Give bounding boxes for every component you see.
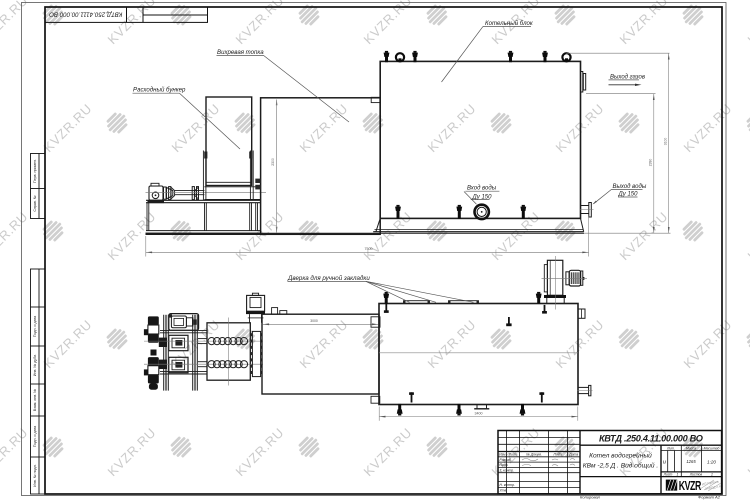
svg-text:3000: 3000 xyxy=(310,319,318,323)
svg-text:Перв. примен.: Перв. примен. xyxy=(33,159,37,183)
svg-text:1:20: 1:20 xyxy=(707,459,716,464)
svg-text:и: и xyxy=(663,460,666,466)
svg-text:Лист: Лист xyxy=(508,452,518,456)
svg-text:КВТД .250.4.11.00.000 ВО: КВТД .250.4.11.00.000 ВО xyxy=(599,433,703,443)
svg-text:Масштаб: Масштаб xyxy=(704,446,720,450)
svg-text:1: 1 xyxy=(711,473,713,477)
svg-text:Лит.: Лит. xyxy=(666,446,675,450)
svg-text:Т. контр.: Т. контр. xyxy=(500,469,515,473)
svg-text:Дата: Дата xyxy=(568,452,578,456)
svg-text:Утв.: Утв. xyxy=(500,489,508,493)
svg-text:1: 1 xyxy=(677,473,679,477)
svg-text:7500: 7500 xyxy=(365,247,373,251)
svg-text:Пров.: Пров. xyxy=(500,463,509,467)
svg-text:KVZR: KVZR xyxy=(679,480,702,494)
svg-text:Справ. №: Справ. № xyxy=(33,195,37,211)
svg-text:Инв. № дубл.: Инв. № дубл. xyxy=(33,354,37,376)
svg-text:3400: 3400 xyxy=(475,412,483,416)
svg-text:КВТД.250.4111.00.000 ВО: КВТД.250.4111.00.000 ВО xyxy=(49,10,122,17)
svg-text:Подп.: Подп. xyxy=(553,452,562,456)
svg-text:Котел водогрейный: Котел водогрейный xyxy=(589,452,652,460)
svg-text:Разраб.: Разраб. xyxy=(500,458,512,462)
svg-text:Взам. инв. №: Взам. инв. № xyxy=(33,389,37,411)
svg-text:Копировал: Копировал xyxy=(580,494,601,499)
svg-text:№ Докум.: № Докум. xyxy=(526,452,542,456)
svg-text:Выход воды: Выход воды xyxy=(613,184,647,190)
svg-text:КВм -2,5 Д . Вид общий .: КВм -2,5 Д . Вид общий . xyxy=(583,462,659,470)
svg-text:2390: 2390 xyxy=(649,159,653,167)
svg-text:2300: 2300 xyxy=(271,158,275,166)
svg-text:Масса: Масса xyxy=(686,446,696,450)
svg-text:Подп. и дата: Подп. и дата xyxy=(33,316,37,337)
svg-text:Формат А2: Формат А2 xyxy=(698,494,721,499)
svg-text:Выход газов: Выход газов xyxy=(610,74,645,80)
svg-text:Инв. № подл.: Инв. № подл. xyxy=(33,464,37,486)
svg-text:Изм: Изм xyxy=(499,452,506,456)
svg-text:Дверка для ручной закладки: Дверка для ручной закладки xyxy=(287,275,370,282)
svg-text:3100: 3100 xyxy=(663,138,667,146)
svg-text:Вход воды: Вход воды xyxy=(467,186,497,192)
svg-text:Подп. и дата: Подп. и дата xyxy=(33,426,37,447)
svg-text:Лист: Лист xyxy=(663,473,673,477)
svg-text:1265: 1265 xyxy=(686,459,696,464)
svg-text:Листов: Листов xyxy=(689,473,703,477)
svg-text:Н. контр.: Н. контр. xyxy=(500,483,515,487)
svg-text:Расходный бункер: Расходный бункер xyxy=(133,86,186,93)
